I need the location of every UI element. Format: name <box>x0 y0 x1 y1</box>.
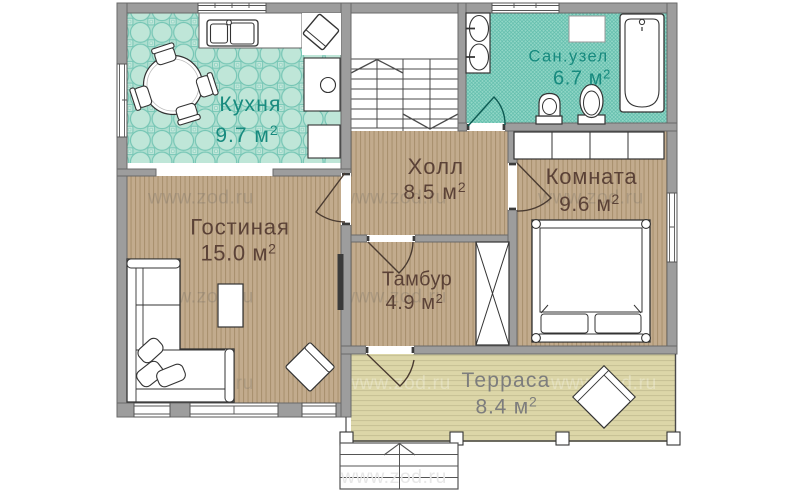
svg-text:Тамбур: Тамбур <box>382 269 452 291</box>
svg-text:9.7 м2: 9.7 м2 <box>215 122 278 147</box>
svg-text:15.0 м2: 15.0 м2 <box>200 241 276 266</box>
svg-text:Сан.узел: Сан.узел <box>528 48 608 66</box>
svg-text:www.zod.ru: www.zod.ru <box>147 187 254 209</box>
svg-text:8.4 м2: 8.4 м2 <box>475 394 537 419</box>
svg-text:8.5 м2: 8.5 м2 <box>403 179 466 204</box>
svg-text:Терраса: Терраса <box>462 369 551 392</box>
svg-text:6.7 м2: 6.7 м2 <box>553 67 611 90</box>
svg-text:9.6 м2: 9.6 м2 <box>559 191 620 216</box>
svg-text:www.zod.ru: www.zod.ru <box>340 466 447 488</box>
svg-text:Комната: Комната <box>546 164 638 189</box>
svg-text:4.9 м2: 4.9 м2 <box>386 291 444 314</box>
svg-text:Гостиная: Гостиная <box>190 215 290 240</box>
svg-text:Кухня: Кухня <box>219 93 281 116</box>
svg-text:Холл: Холл <box>408 154 465 179</box>
